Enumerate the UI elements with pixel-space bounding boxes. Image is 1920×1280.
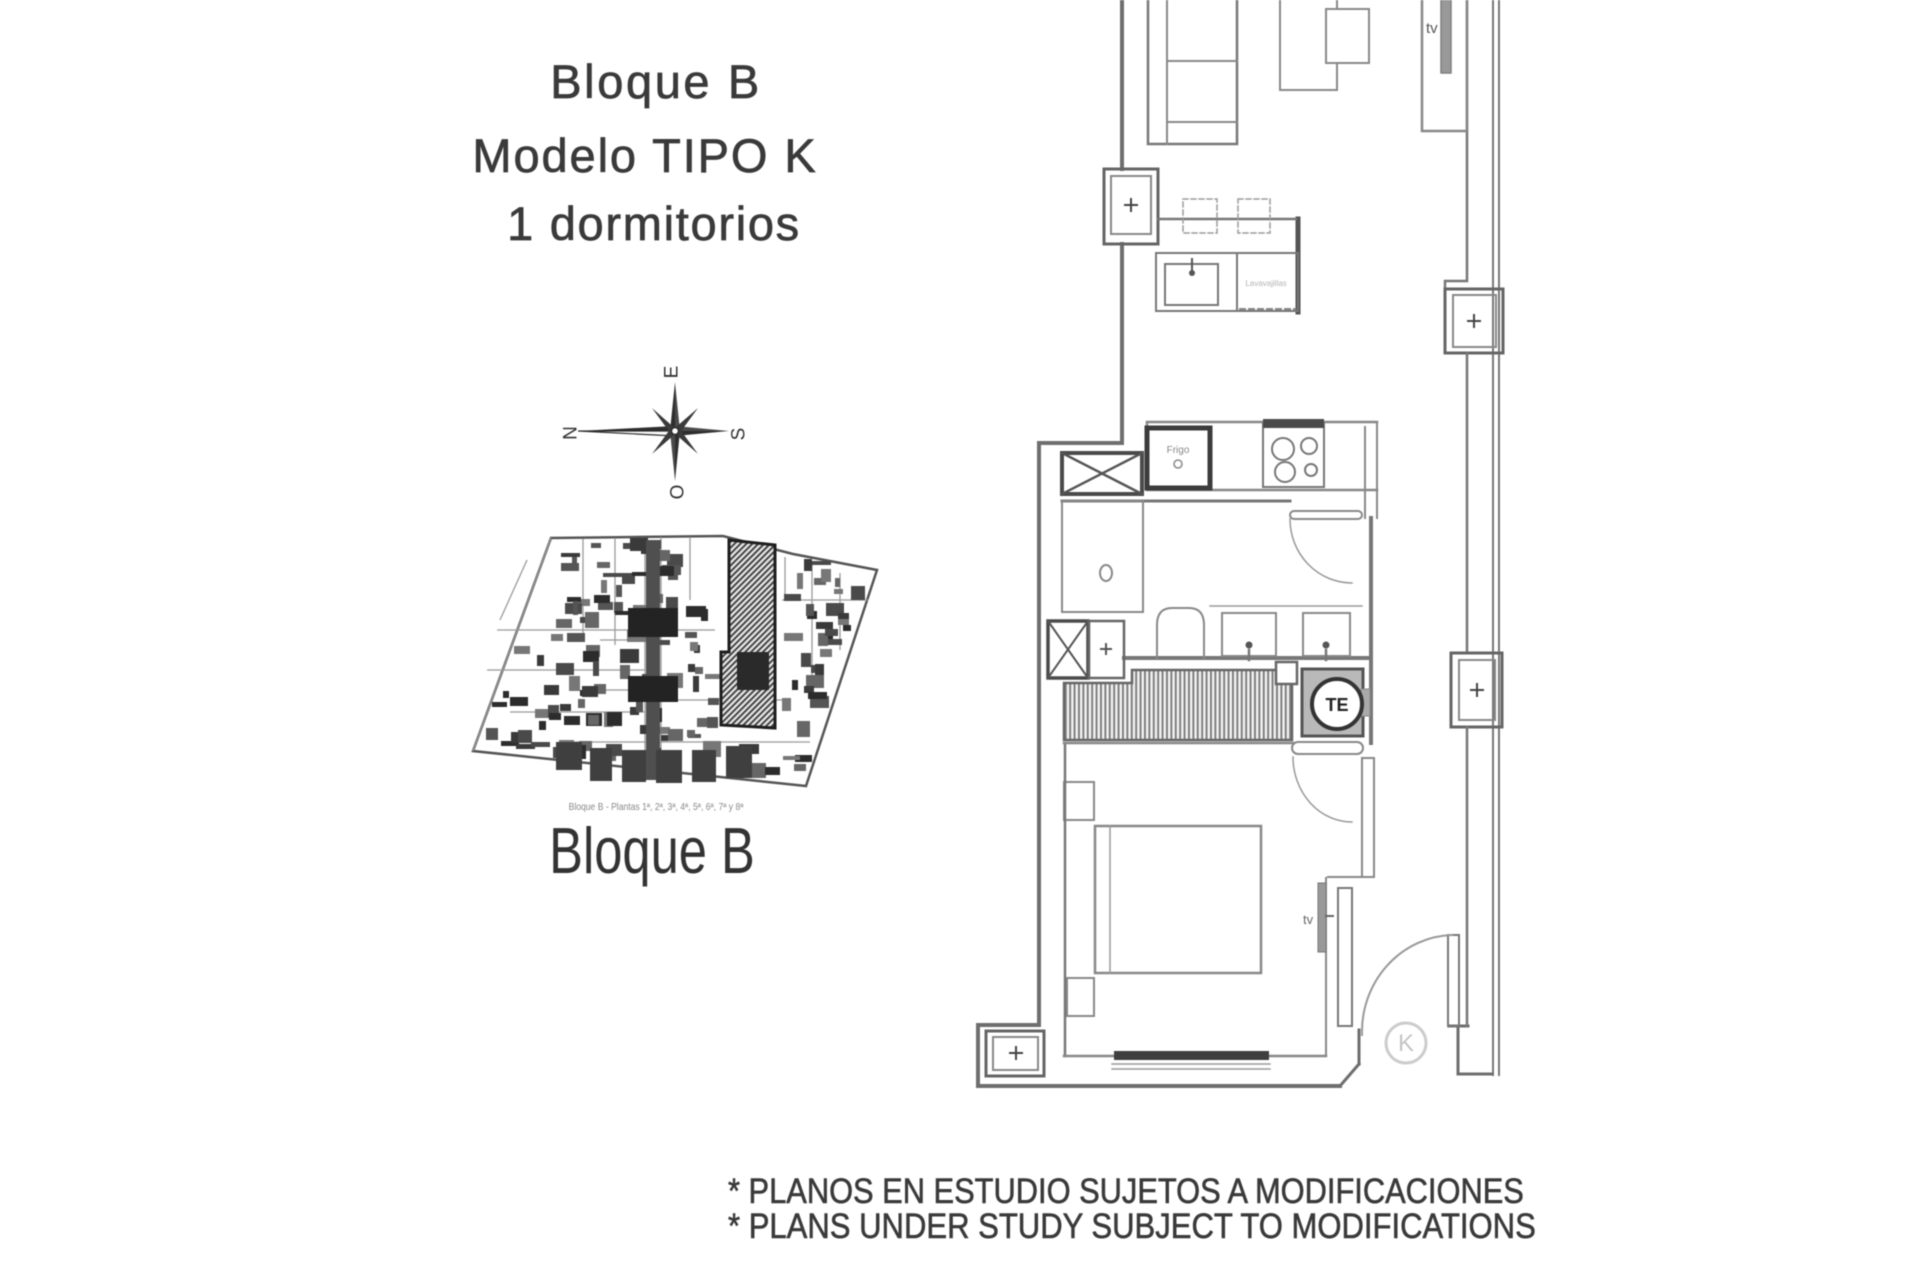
svg-text:1 dormitorios: 1 dormitorios xyxy=(507,197,801,250)
svg-text:Bloque B: Bloque B xyxy=(550,55,762,108)
svg-text:Bloque B: Bloque B xyxy=(549,815,755,887)
svg-text:Bloque B - Plantas 1ª, 2ª, 3ª,: Bloque B - Plantas 1ª, 2ª, 3ª, 4ª, 5ª, 6… xyxy=(569,801,744,812)
svg-text:Modelo TIPO K: Modelo TIPO K xyxy=(472,129,817,182)
svg-text:tv: tv xyxy=(1303,912,1314,927)
svg-text:Frigo: Frigo xyxy=(1167,445,1190,456)
svg-text:E: E xyxy=(662,366,683,379)
svg-text:S: S xyxy=(729,428,750,441)
svg-text:* PLANOS EN ESTUDIO SUJETOS A: * PLANOS EN ESTUDIO SUJETOS A MODIFICACI… xyxy=(728,1171,1524,1210)
svg-text:K: K xyxy=(1398,1030,1414,1057)
svg-text:tv: tv xyxy=(1426,20,1438,37)
svg-text:N: N xyxy=(561,426,582,440)
svg-text:TE: TE xyxy=(1325,695,1348,715)
svg-text:Lavavajillas: Lavavajillas xyxy=(1245,279,1286,288)
svg-text:O: O xyxy=(668,485,689,500)
svg-text:* PLANS UNDER STUDY SUBJECT TO: * PLANS UNDER STUDY SUBJECT TO MODIFICAT… xyxy=(728,1207,1536,1246)
